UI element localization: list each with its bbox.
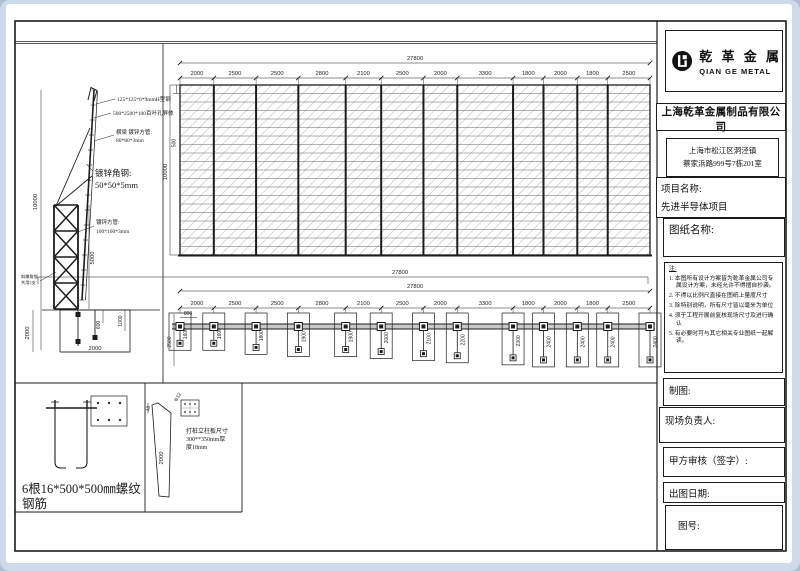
annotation-angle-1: 镀锌角钢: <box>95 168 131 178</box>
company-address-line2: 蔡家浜路999号7栋201室 <box>667 158 778 171</box>
pile-detail: 18 2000 Φ12 打桩立柱板尺寸 300**350mm厚 度18mm <box>145 392 228 497</box>
plan-segment-dim: 2500 <box>228 301 241 307</box>
drawing-number-row: 图号: <box>665 505 783 550</box>
rebar-note-line1: 6根16*500*500㎜螺纹 <box>22 482 141 496</box>
detail-side-note-1: 斜撑角钢 <box>21 273 38 280</box>
plan-overall-dim: 27800 <box>392 270 408 276</box>
annotation-h-steel: 125*125*6*9mmH型钢 <box>117 95 171 103</box>
pile-dim-18: 18 <box>145 405 152 412</box>
detail-dim-600: 600 <box>96 321 102 330</box>
plan-post-depth-dim: 2100 <box>426 333 432 344</box>
plan-post-depth-dim: 2300 <box>516 335 522 346</box>
plan-segment-dim: 2800 <box>316 301 329 307</box>
elevation-segment-dim: 3300 <box>479 71 492 77</box>
issue-date-label: 出图日期: <box>669 490 710 500</box>
post-section-detail: 125*125*6*9mmH型钢 500*2500*100百叶孔屏体 横梁 镀锌… <box>21 88 174 353</box>
annotation-tube-2: 100*100*3mm <box>96 229 130 235</box>
notes-list: 1. 本图所有设计方案皆为乾革金属公司专属设计方案，未经允许不得擅自抄袭。2. … <box>669 276 778 346</box>
site-manager-label: 现场负责人: <box>665 417 715 427</box>
elevation-segment-dim: 2000 <box>434 71 447 77</box>
note-item: 2. 不得以比例尺直接在图纸上量度尺寸 <box>669 293 778 301</box>
detail-dim-base: 2000 <box>89 346 102 352</box>
elevation-segment-dim: 2800 <box>316 71 329 77</box>
rebar-note-line2: 钢筋 <box>22 496 47 511</box>
plan-segment-dim: 2000 <box>190 301 203 307</box>
detail-dim-truss: 5000 <box>90 252 96 265</box>
plan-segment-dim: 2500 <box>271 301 284 307</box>
client-review-label: 甲方审核（签字）: <box>669 457 748 467</box>
plan-post-depth-dim: 1600 <box>183 328 189 339</box>
logo-icon <box>671 42 693 80</box>
notes-box: 注: 1. 本图所有设计方案皆为乾革金属公司专属设计方案，未经允许不得擅自抄袭。… <box>664 262 783 373</box>
plan-post-depth-dim: 2400 <box>653 336 659 347</box>
plan-segment-dim: 2100 <box>357 301 370 307</box>
note-item: 4. 须于工程开展前复核现场尺寸及进行确认 <box>669 313 778 328</box>
elevation-segment-dim: 2500 <box>622 71 635 77</box>
plan-segment-dim: 2500 <box>622 301 635 307</box>
plan-post-depth-dim: 1900 <box>301 331 307 342</box>
plan-segment-dim: 1800 <box>522 301 535 307</box>
drawing-name-row: 图纸名称: <box>663 218 785 257</box>
detail-side-note-2: 共用5支 <box>21 279 36 286</box>
plan-post-depth-dim: 1600 <box>217 328 223 339</box>
plan-post-depth-dim: 2400 <box>611 336 617 347</box>
project-name-label: 项目名称: <box>661 181 781 195</box>
elevation-height-dim: 10000 <box>163 164 169 180</box>
note-item: 5. 有必要时可与其它相关专业图纸一起解读。 <box>669 331 778 346</box>
notes-title: 注: <box>669 266 778 274</box>
elevation-segment-dim: 2500 <box>271 71 284 77</box>
logo-name-en: QIAN GE METAL <box>699 67 782 76</box>
plan-segment-dim: 3300 <box>479 301 492 307</box>
elevation-segment-dim: 2100 <box>357 71 370 77</box>
plan-view: 27800 27800 2000250025002800210025002000… <box>38 270 661 367</box>
logo: 乾 革 金 属 QIAN GE METAL <box>665 30 783 92</box>
elevation-segment-dim: 2500 <box>396 71 409 77</box>
pile-note-line2: 300**350mm厚 <box>186 436 225 443</box>
maker-row: 制图: <box>663 378 785 406</box>
annotation-tube-1: 镀锌方管: <box>96 218 120 226</box>
logo-name-cn: 乾 革 金 属 <box>699 46 782 65</box>
plan-segment-dim: 2000 <box>434 301 447 307</box>
pile-note-line1: 打桩立柱板尺寸 <box>186 427 228 435</box>
pile-dim-2000: 2000 <box>159 452 165 465</box>
elevation-segment-dim: 2000 <box>190 71 203 77</box>
elevation-band-dim: 500 <box>172 139 178 148</box>
plan-segment-dim: 2000 <box>554 301 567 307</box>
plan-first-outer-dim: 2500 <box>167 336 173 347</box>
company-name: 上海乾革金属制品有限公司 <box>656 103 786 131</box>
plan-total-dim: 27800 <box>407 284 423 290</box>
elevation-segment-dim: 1800 <box>586 71 599 77</box>
elevation-segment-dim: 2500 <box>228 71 241 77</box>
elevation-segment-dim: 2000 <box>554 71 567 77</box>
plan-post-depth-dim: 2000 <box>384 332 390 343</box>
plan-segment-dim: 2500 <box>396 301 409 307</box>
plan-post-depth-dim: 1900 <box>349 331 355 342</box>
plan-post-depth-dim: 1800 <box>259 330 265 341</box>
annotation-beam-2: 80*80*3mm <box>116 138 145 144</box>
maker-label: 制图: <box>669 387 691 397</box>
project-name-value: 先进半导体项目 <box>661 199 781 213</box>
project-name-row: 项目名称: 先进半导体项目 <box>656 177 786 218</box>
plan-post-depth-dim: 2400 <box>580 336 586 347</box>
site-manager-row: 现场负责人: <box>659 407 785 443</box>
plan-segment-dim: 1800 <box>586 301 599 307</box>
detail-dim-1000: 1000 <box>118 315 124 326</box>
elevation-total-dim: 27800 <box>407 56 423 62</box>
elevation-segment-dim: 1800 <box>522 71 535 77</box>
client-review-row: 甲方审核（签字）: <box>663 447 785 477</box>
drawing-number-label: 图号: <box>678 522 700 532</box>
detail-dim-height: 10000 <box>33 194 39 210</box>
drawing-name-label: 图纸名称: <box>669 225 714 236</box>
issue-date-row: 出图日期: <box>663 482 785 503</box>
elevation-view: 27800 2000250025002800210025002000330018… <box>163 56 652 256</box>
pile-note-line3: 度18mm <box>186 443 208 451</box>
annotation-panel: 500*2500*100百叶孔屏体 <box>113 109 174 117</box>
company-address: 上海市松江区洞泾镇 蔡家浜路999号7栋201室 <box>666 138 779 177</box>
note-item: 3. 除特别说明，所有尺寸皆以毫米为单位 <box>669 303 778 311</box>
plan-post-depth-dim: 2200 <box>460 334 466 345</box>
detail-dim-bury: 2000 <box>25 327 31 340</box>
scanned-page-background: 125*125*6*9mmH型钢 500*2500*100百叶孔屏体 横梁 镀锌… <box>0 0 800 571</box>
company-address-line1: 上海市松江区洞泾镇 <box>667 145 778 158</box>
note-item: 1. 本图所有设计方案皆为乾革金属公司专属设计方案，未经允许不得擅自抄袭。 <box>669 276 778 291</box>
anchor-bolt-detail: 6根16*500*500㎜螺纹 钢筋 <box>22 396 141 511</box>
plan-post-depth-dim: 2400 <box>546 336 552 347</box>
annotation-beam-1: 横梁 镀锌方管: <box>116 128 152 136</box>
annotation-angle-2: 50*50*5mm <box>95 180 138 190</box>
